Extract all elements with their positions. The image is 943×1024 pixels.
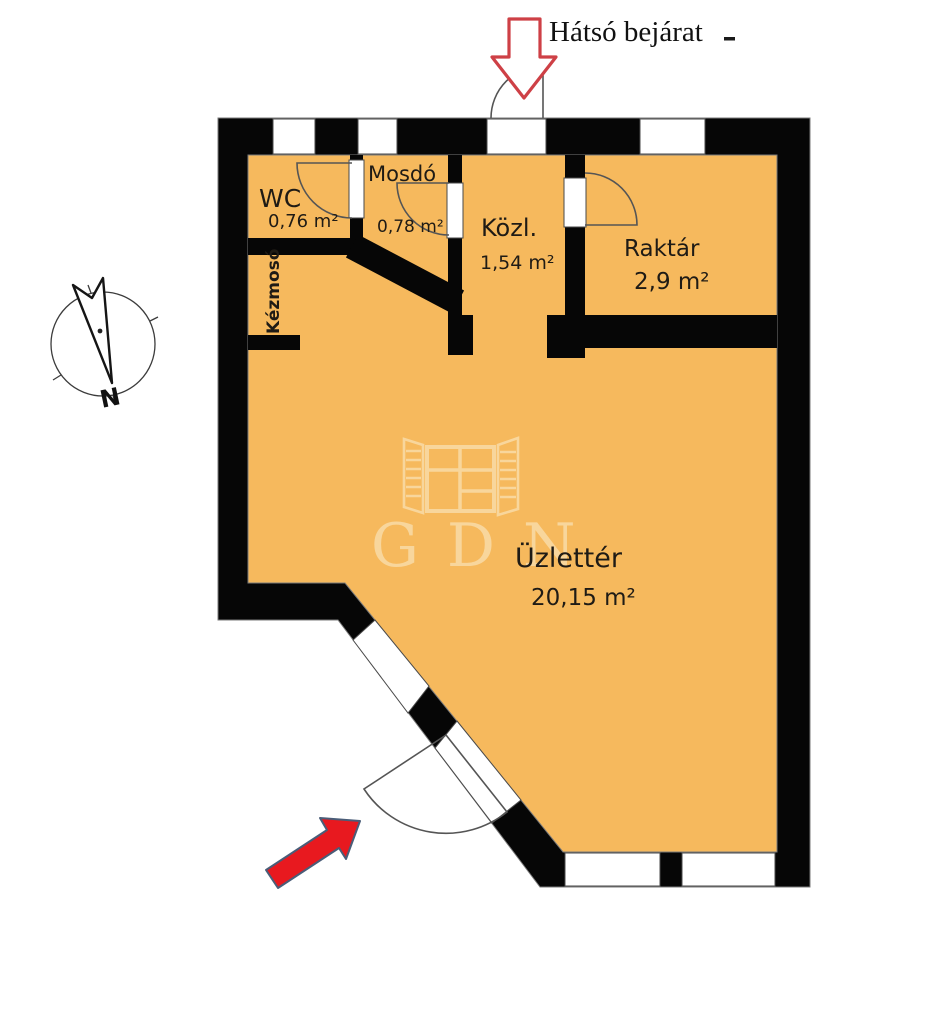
mosdo-door-opening	[447, 183, 463, 238]
compass-rose: N	[51, 278, 158, 414]
compass-center-dot	[98, 329, 103, 334]
window-opening-top-1	[273, 119, 315, 154]
room-name-mosdo: Mosdó	[368, 162, 436, 186]
wc-door-opening	[349, 160, 364, 218]
entry-arrow-icon	[266, 818, 360, 888]
floor-plan-drawing: GDN WC 0,76 m² Mosdó 0,78 m² Közl. 1,54 …	[0, 0, 943, 1024]
room-name-wc: WC	[259, 184, 301, 213]
wall-raktar-bottom	[565, 315, 777, 348]
window-opening-bottom-2	[682, 853, 775, 886]
back-door-opening	[487, 119, 546, 154]
room-area-wc: 0,76 m²	[268, 211, 339, 232]
room-name-kozl: Közl.	[481, 214, 537, 242]
room-area-mosdo: 0,78 m²	[377, 217, 444, 237]
room-name-uzletter: Üzlettér	[515, 542, 623, 574]
back-entrance-label: Hátsó bejárat	[549, 16, 703, 48]
room-area-raktar: 2,9 m²	[634, 269, 710, 295]
room-area-uzletter: 20,15 m²	[531, 585, 636, 611]
window-opening-top-2	[358, 119, 397, 154]
stray-mark	[724, 37, 735, 41]
window-opening-bottom-1	[565, 853, 660, 886]
room-name-raktar: Raktár	[624, 236, 700, 262]
wall-kezmoso-stub	[248, 335, 300, 350]
compass-needle	[73, 278, 112, 383]
room-area-kozl: 1,54 m²	[480, 252, 554, 274]
compass-north-label: N	[97, 382, 122, 414]
wall-stub-right-of-corridor	[547, 315, 585, 358]
wall-kozl-left-foot	[462, 315, 473, 355]
window-opening-top-3	[640, 119, 705, 154]
fixture-label-kezmoso: Kézmosó	[264, 249, 284, 335]
floor-plan-page: GDN WC 0,76 m² Mosdó 0,78 m² Közl. 1,54 …	[0, 0, 943, 1024]
raktar-door-opening	[564, 178, 586, 227]
